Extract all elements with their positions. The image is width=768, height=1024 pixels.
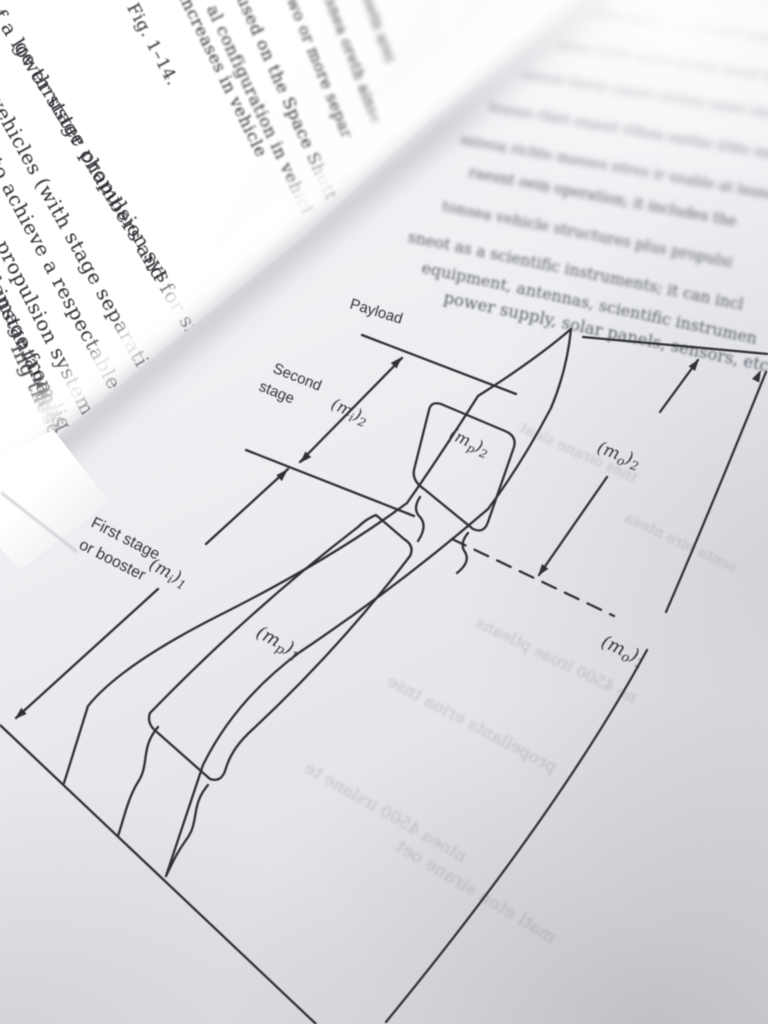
- second-stage-nozzle-right: [457, 533, 468, 573]
- first-stage-nozzle-right: [166, 785, 208, 876]
- m01-label: (mo)1: [597, 631, 650, 672]
- top-reference-line: [583, 337, 768, 354]
- interstage-dashed-line: [452, 539, 614, 616]
- rocket-left-edge: [64, 329, 571, 783]
- second-stage-tank: [414, 403, 515, 530]
- mi1-label: (mi)1: [145, 555, 192, 593]
- m01-arrow: [386, 372, 766, 1022]
- m02-label: (mo)2: [594, 438, 644, 474]
- mp2-label: (mp)2: [445, 424, 493, 461]
- bottom-reference-line: [0, 725, 316, 1024]
- left-page-spine-line: soetn arei: [357, 0, 398, 65]
- mi2-label: (mi)2: [327, 394, 371, 430]
- mp1-label: (mp)1: [251, 622, 304, 666]
- rocket-right-edge: [166, 329, 571, 876]
- arrowhead: [752, 370, 761, 383]
- left-page-spine-line: Fig. 1–14.: [122, 0, 182, 89]
- payload-label: Payload: [348, 296, 405, 328]
- second-stage-nozzle-left: [416, 497, 424, 541]
- first-stage-nozzle-left: [118, 727, 158, 836]
- book-photo: tesn oaneth rseoit naeth soen itrea nthe…: [0, 0, 768, 1024]
- arrowhead: [538, 564, 548, 576]
